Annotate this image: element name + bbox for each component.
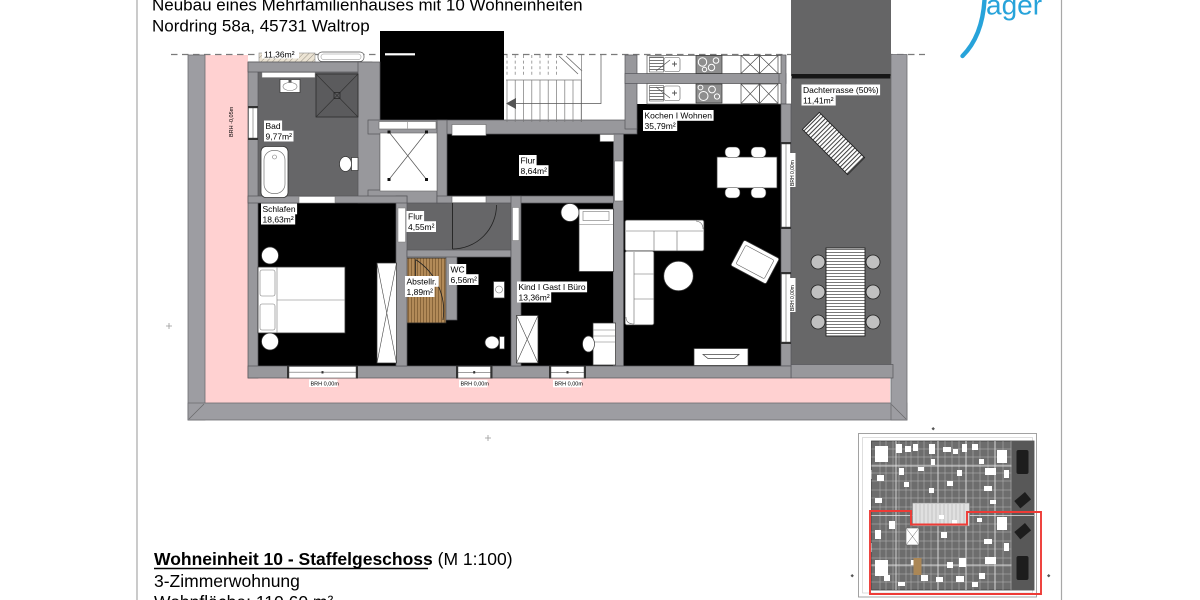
svg-text:4,55m²: 4,55m²: [408, 222, 435, 232]
svg-text:Kochen I Wohnen: Kochen I Wohnen: [645, 111, 713, 121]
svg-text:BRH 0,00m: BRH 0,00m: [790, 160, 796, 186]
svg-text:Dachterrasse (50%): Dachterrasse (50%): [803, 85, 879, 95]
svg-text:BRH 0,00m: BRH 0,00m: [461, 382, 490, 388]
svg-text:BRH -0,05m: BRH -0,05m: [229, 106, 235, 137]
svg-text:Bad: Bad: [266, 121, 281, 131]
svg-text:äger: äger: [986, 0, 1042, 21]
svg-text:Neubau eines Mehrfamilienhause: Neubau eines Mehrfamilienhauses mit 10 W…: [152, 0, 583, 15]
svg-text:Abstellr.: Abstellr.: [407, 277, 437, 287]
svg-text:18,63m²: 18,63m²: [263, 214, 294, 224]
svg-text:1,89m²: 1,89m²: [407, 287, 434, 297]
svg-text:35,79m²: 35,79m²: [645, 121, 676, 131]
svg-text:8,64m²: 8,64m²: [521, 166, 548, 176]
svg-text:13,36m²: 13,36m²: [519, 292, 550, 302]
svg-text:6,56m²: 6,56m²: [451, 275, 478, 285]
svg-text:11,41m²: 11,41m²: [803, 95, 834, 105]
svg-text:Wohnfläche: 110,60 m²: Wohnfläche: 110,60 m²: [154, 592, 333, 600]
svg-text:9,77m²: 9,77m²: [266, 131, 293, 141]
svg-text:WC: WC: [451, 265, 465, 275]
svg-text:BRH 0,00m: BRH 0,00m: [311, 381, 340, 387]
svg-text:Nordring 58a, 45731 Waltrop: Nordring 58a, 45731 Waltrop: [152, 17, 370, 36]
svg-text:Wohneinheit 10 - Staffelgescho: Wohneinheit 10 - Staffelgeschoss (M 1:10…: [154, 549, 513, 569]
svg-text:BRH 0,00m: BRH 0,00m: [555, 382, 584, 388]
svg-text:Schlafen: Schlafen: [263, 204, 296, 214]
svg-text:Kind I Gast I Büro: Kind I Gast I Büro: [519, 282, 586, 292]
svg-text:3-Zimmerwohnung: 3-Zimmerwohnung: [154, 571, 300, 591]
svg-text:11,36m²: 11,36m²: [264, 49, 295, 59]
svg-text:BRH 0,00m: BRH 0,00m: [790, 285, 796, 311]
svg-text:Flur: Flur: [408, 212, 423, 222]
svg-text:Flur: Flur: [521, 156, 536, 166]
